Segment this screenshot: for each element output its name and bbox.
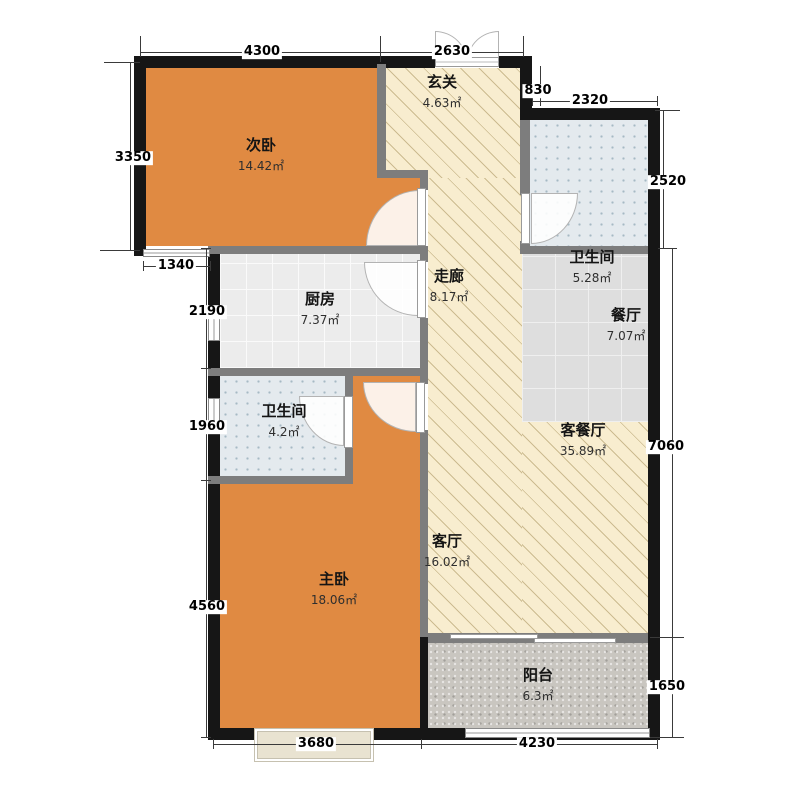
dimension-line <box>125 62 135 63</box>
dimension-label-3350: 3350 <box>113 151 153 165</box>
dimension-label-1340: 1340 <box>156 259 196 273</box>
dimension-line <box>658 110 668 111</box>
dimension-line <box>210 261 211 271</box>
master-bedroom-door-leaf <box>416 382 425 433</box>
room-label-living-room: 客厅16.02㎡ <box>424 530 470 570</box>
dimension-line <box>213 744 657 745</box>
room-label-master-bedroom: 主卧18.06㎡ <box>311 568 357 608</box>
room-name-corridor: 走廊 <box>430 265 469 286</box>
dimension-line <box>657 96 658 106</box>
exterior-wall <box>532 108 660 120</box>
dimension-line <box>201 248 211 249</box>
room-area-dining-room: 7.07㎡ <box>607 327 646 344</box>
exterior-wall <box>420 637 428 740</box>
dimension-line <box>672 248 673 737</box>
room-label-balcony: 阳台6.3㎡ <box>522 664 553 704</box>
room-area-bathroom-2: 4.2㎡ <box>261 423 306 440</box>
dimension-line <box>421 739 422 749</box>
room-name-kitchen: 厨房 <box>301 288 340 309</box>
interior-wall <box>208 246 428 254</box>
room-label-secondary-bedroom: 次卧14.42㎡ <box>238 134 284 174</box>
dimension-label-2520: 2520 <box>648 175 688 189</box>
dimension-line <box>201 480 211 481</box>
interior-wall <box>208 368 428 376</box>
room-name-master-bedroom: 主卧 <box>311 568 357 589</box>
interior-wall <box>345 376 353 398</box>
exterior-wall <box>648 108 660 740</box>
dimension-label-4560: 4560 <box>187 600 227 614</box>
dimension-line <box>206 248 207 737</box>
balcony-sliding-door <box>534 638 616 643</box>
room-area-secondary-bedroom: 14.42㎡ <box>238 157 284 174</box>
interior-wall <box>208 476 353 484</box>
secondary-bedroom-door-leaf <box>417 188 426 246</box>
room-label-dining-room: 餐厅7.07㎡ <box>607 304 646 344</box>
room-label-bathroom-2: 卫生间4.2㎡ <box>261 400 306 440</box>
dimension-line <box>143 261 144 271</box>
dimension-line <box>201 737 211 738</box>
dimension-line <box>667 737 677 738</box>
dimension-label-2320: 2320 <box>570 94 610 108</box>
dimension-label-830: 830 <box>522 84 553 98</box>
bathroom-2-door-leaf <box>344 396 353 448</box>
room-area-balcony: 6.3㎡ <box>522 687 553 704</box>
room-area-living-dining-room: 35.89㎡ <box>560 442 606 459</box>
dimension-line <box>657 739 658 749</box>
floor-plan: 4300263083023202520335013402190196045607… <box>0 0 800 800</box>
dimension-label-2630: 2630 <box>432 45 472 59</box>
room-name-bathroom-1: 卫生间 <box>569 246 614 267</box>
room-label-living-dining-room: 客餐厅35.89㎡ <box>560 419 606 459</box>
room-name-living-room: 客厅 <box>424 530 470 551</box>
room-name-balcony: 阳台 <box>522 664 553 685</box>
room-name-entrance-hall: 玄关 <box>423 71 462 92</box>
dimension-label-3680: 3680 <box>296 737 336 751</box>
dimension-line <box>140 47 141 57</box>
dimension-line <box>213 739 214 749</box>
interior-wall <box>520 120 530 195</box>
bathroom-1-door-leaf <box>521 193 530 244</box>
room-name-living-dining-room: 客餐厅 <box>560 419 606 440</box>
kitchen-door-leaf <box>417 260 426 318</box>
balcony-sliding-door <box>450 634 538 639</box>
dimension-line <box>523 47 524 57</box>
dimension-line <box>667 637 677 638</box>
dimension-line <box>201 368 211 369</box>
dimension-line <box>125 250 135 251</box>
interior-wall <box>377 64 386 178</box>
room-label-corridor: 走廊8.17㎡ <box>430 265 469 305</box>
dimension-label-1650: 1650 <box>647 680 687 694</box>
room-label-bathroom-1: 卫生间5.28㎡ <box>569 246 614 286</box>
room-label-entrance-hall: 玄关4.63㎡ <box>423 71 462 111</box>
exterior-wall <box>134 56 435 68</box>
dimension-label-7060: 7060 <box>646 440 686 454</box>
dimension-label-2190: 2190 <box>187 305 227 319</box>
dimension-line <box>380 47 381 57</box>
dimension-label-4230: 4230 <box>517 737 557 751</box>
room-name-bathroom-2: 卫生间 <box>261 400 306 421</box>
dimension-line <box>667 248 677 249</box>
room-area-bathroom-1: 5.28㎡ <box>569 269 614 286</box>
balcony-window <box>465 728 650 738</box>
interior-wall <box>345 446 353 480</box>
room-area-entrance-hall: 4.63㎡ <box>423 94 462 111</box>
room-area-corridor: 8.17㎡ <box>430 288 469 305</box>
secondary-bedroom-window <box>143 249 210 257</box>
interior-wall <box>377 170 428 178</box>
room-area-master-bedroom: 18.06㎡ <box>311 591 357 608</box>
room-name-dining-room: 餐厅 <box>607 304 646 325</box>
room-name-secondary-bedroom: 次卧 <box>238 134 284 155</box>
dimension-label-1960: 1960 <box>187 420 227 434</box>
room-label-kitchen: 厨房7.37㎡ <box>301 288 340 328</box>
dimension-label-4300: 4300 <box>242 45 282 59</box>
room-area-living-room: 16.02㎡ <box>424 553 470 570</box>
room-area-kitchen: 7.37㎡ <box>301 311 340 328</box>
